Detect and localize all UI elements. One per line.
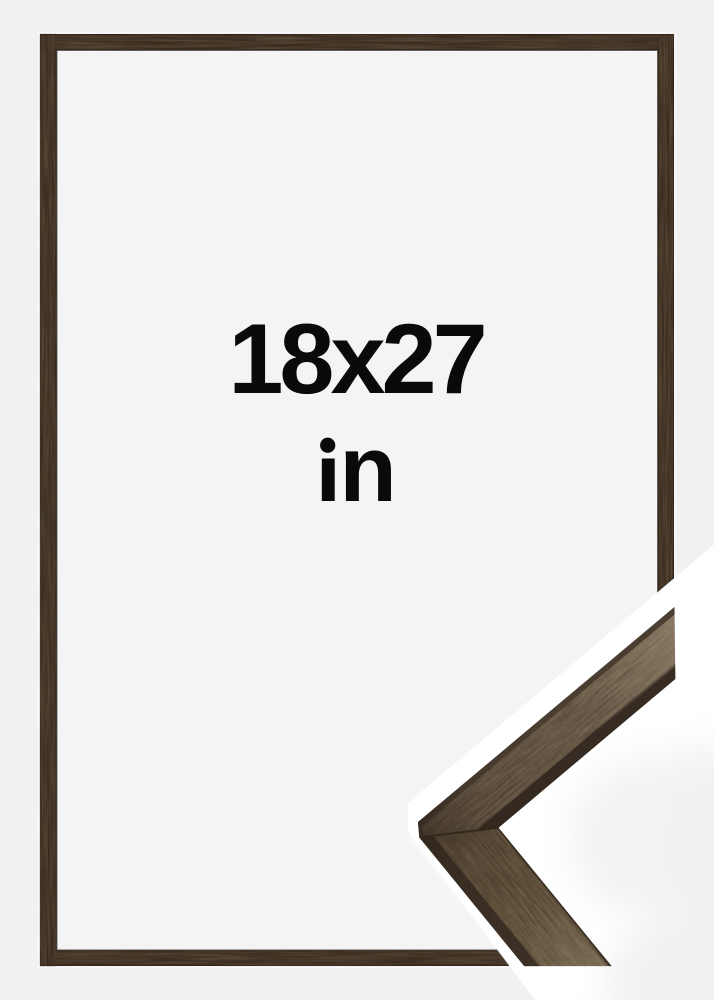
svg-text:18x27: 18x27 xyxy=(228,303,483,414)
